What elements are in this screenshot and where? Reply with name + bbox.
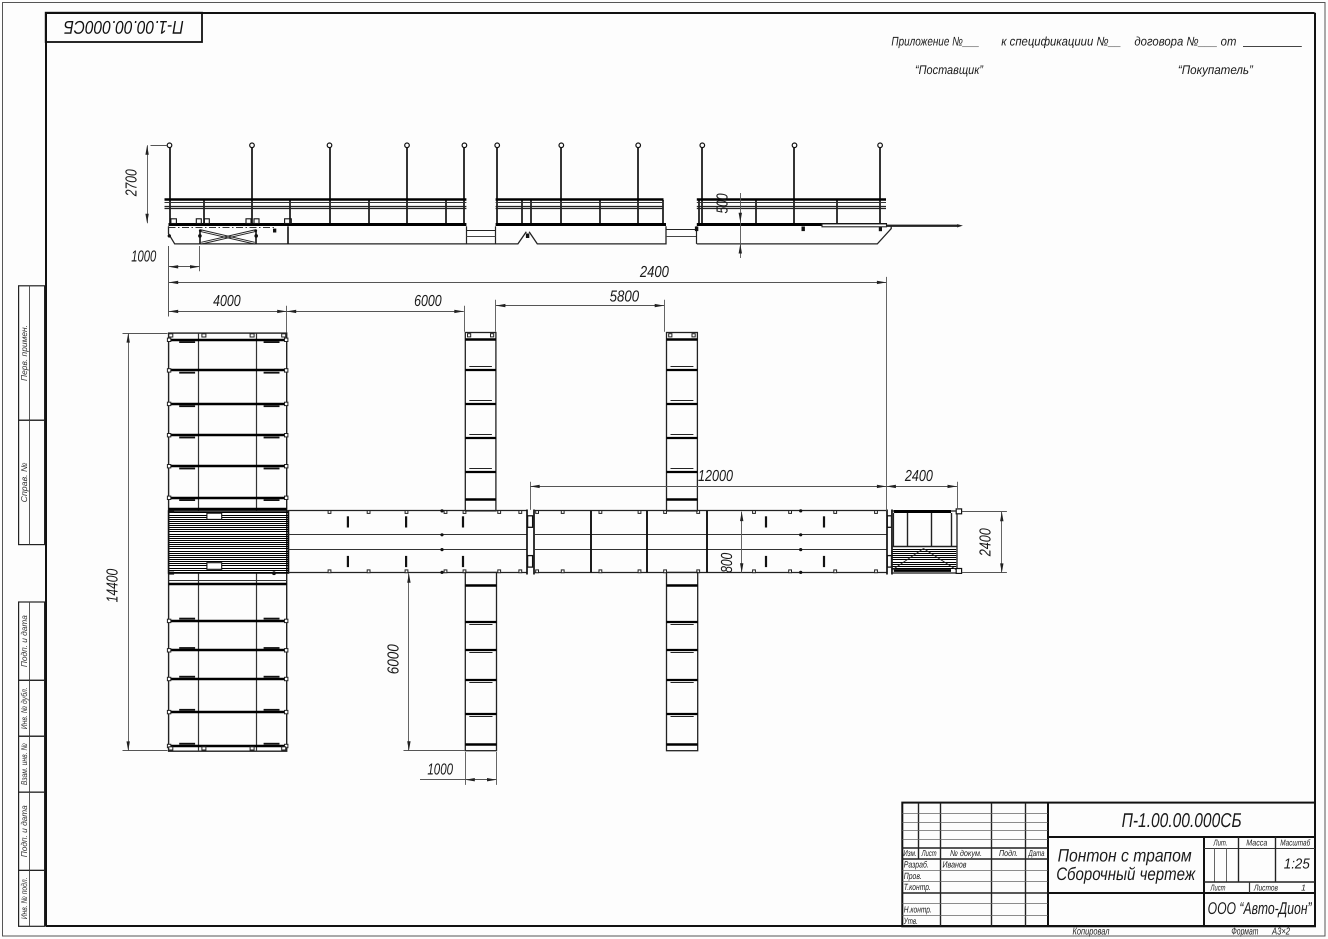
- svg-text:2700: 2700: [123, 169, 140, 197]
- svg-text:ООО “Авто-Дион”: ООО “Авто-Дион”: [1208, 899, 1313, 918]
- svg-text:Лит.: Лит.: [1213, 838, 1228, 848]
- svg-text:2400: 2400: [977, 528, 994, 557]
- svg-text:Подп. и дата: Подп. и дата: [19, 805, 29, 857]
- svg-text:4000: 4000: [213, 293, 241, 310]
- svg-text:Понтон с трапом: Понтон с трапом: [1058, 846, 1192, 866]
- svg-text:1:25: 1:25: [1284, 857, 1311, 873]
- svg-text:Пров.: Пров.: [904, 871, 922, 881]
- svg-text:А3×2: А3×2: [1271, 927, 1290, 938]
- svg-text:1000: 1000: [427, 761, 453, 778]
- svg-text:Дата: Дата: [1028, 848, 1045, 858]
- svg-text:“Поставщик”: “Поставщик”: [915, 63, 984, 77]
- svg-text:Масштаб: Масштаб: [1280, 838, 1311, 848]
- svg-text:1: 1: [1301, 883, 1306, 893]
- svg-text:П-1.00.00.000СБ: П-1.00.00.000СБ: [1122, 810, 1242, 832]
- svg-text:Копировал: Копировал: [1073, 927, 1110, 938]
- svg-text:к спецификациии №__: к спецификациии №__: [1001, 34, 1121, 48]
- svg-text:Инв. № подл.: Инв. № подл.: [19, 877, 29, 919]
- svg-text:Изм.: Изм.: [903, 848, 917, 858]
- svg-text:Приложение №___: Приложение №___: [891, 34, 979, 48]
- svg-text:Масса: Масса: [1246, 838, 1267, 848]
- svg-text:№ докум.: № докум.: [950, 848, 982, 858]
- svg-text:Сборочный чертеж: Сборочный чертеж: [1056, 864, 1196, 884]
- svg-text:6000: 6000: [385, 644, 402, 674]
- svg-text:Справ. №: Справ. №: [19, 462, 29, 502]
- svg-text:Подп.: Подп.: [999, 848, 1018, 858]
- svg-text:Подп. и дата: Подп. и дата: [19, 615, 29, 667]
- svg-text:Лист: Лист: [1210, 883, 1226, 893]
- svg-text:Перв. примен.: Перв. примен.: [19, 325, 29, 381]
- svg-text:6000: 6000: [414, 293, 442, 310]
- svg-text:5800: 5800: [610, 289, 640, 306]
- svg-text:договора №___ от: договора №___ от: [1134, 34, 1236, 48]
- svg-text:2400: 2400: [904, 468, 933, 485]
- svg-text:Иванов: Иванов: [943, 860, 967, 870]
- svg-text:12000: 12000: [698, 468, 733, 485]
- svg-text:Взам. инв. №: Взам. инв. №: [19, 743, 29, 785]
- svg-text:Инв. № дубл.: Инв. № дубл.: [19, 687, 29, 729]
- svg-text:Листов: Листов: [1253, 883, 1278, 893]
- svg-text:2400: 2400: [639, 264, 669, 281]
- svg-text:П-1.00.00.000СБ: П-1.00.00.000СБ: [64, 17, 184, 38]
- svg-text:Утв.: Утв.: [903, 916, 918, 926]
- svg-text:500: 500: [714, 193, 731, 213]
- svg-text:800: 800: [719, 553, 736, 573]
- svg-text:Т.контр.: Т.контр.: [904, 882, 931, 892]
- svg-text:Лист: Лист: [921, 848, 937, 858]
- svg-text:14400: 14400: [104, 569, 121, 603]
- svg-text:Формат: Формат: [1231, 927, 1258, 938]
- svg-text:Разраб.: Разраб.: [904, 860, 929, 870]
- svg-text:Н.контр.: Н.контр.: [904, 905, 932, 915]
- svg-text:1000: 1000: [131, 249, 156, 266]
- svg-text:“Покупатель”: “Покупатель”: [1178, 63, 1254, 77]
